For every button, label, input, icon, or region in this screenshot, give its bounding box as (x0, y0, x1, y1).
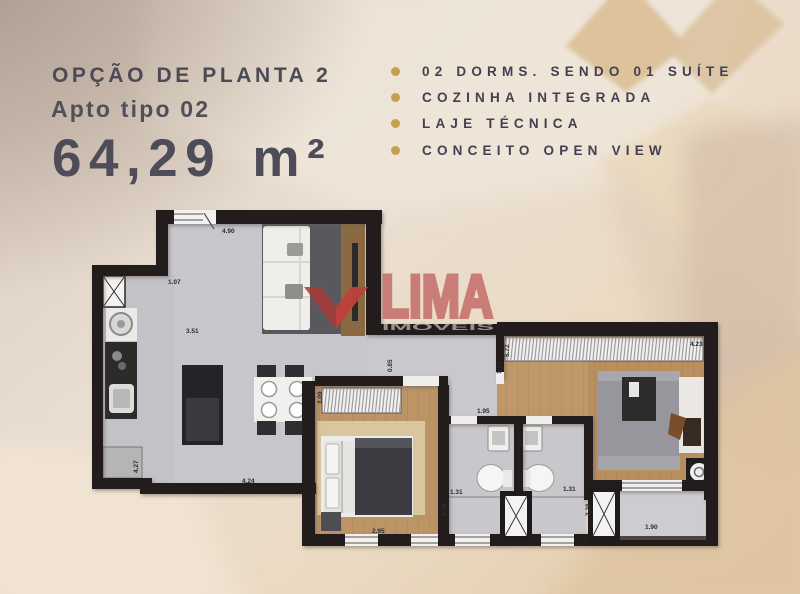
svg-text:2.30: 2.30 (441, 503, 448, 516)
svg-text:4.90: 4.90 (222, 228, 235, 235)
svg-text:0.85: 0.85 (387, 359, 394, 372)
svg-text:IMÓVEIS: IMÓVEIS (382, 321, 494, 333)
svg-text:2.95: 2.95 (372, 528, 385, 535)
svg-text:1.31: 1.31 (563, 486, 576, 493)
svg-text:1.90: 1.90 (645, 524, 658, 531)
svg-text:1.95: 1.95 (477, 408, 490, 415)
svg-text:4.24: 4.24 (242, 478, 255, 485)
svg-text:2.28: 2.28 (585, 503, 592, 516)
svg-text:1.72: 1.72 (496, 361, 503, 374)
svg-text:LIMA: LIMA (381, 263, 493, 330)
svg-text:1.31: 1.31 (450, 489, 463, 496)
svg-text:3.51: 3.51 (186, 328, 199, 335)
svg-text:5.72: 5.72 (504, 344, 511, 357)
svg-text:1.07: 1.07 (168, 279, 181, 286)
svg-text:3.09: 3.09 (317, 391, 324, 404)
svg-text:4.27: 4.27 (133, 460, 140, 473)
svg-text:4.23: 4.23 (690, 341, 703, 348)
